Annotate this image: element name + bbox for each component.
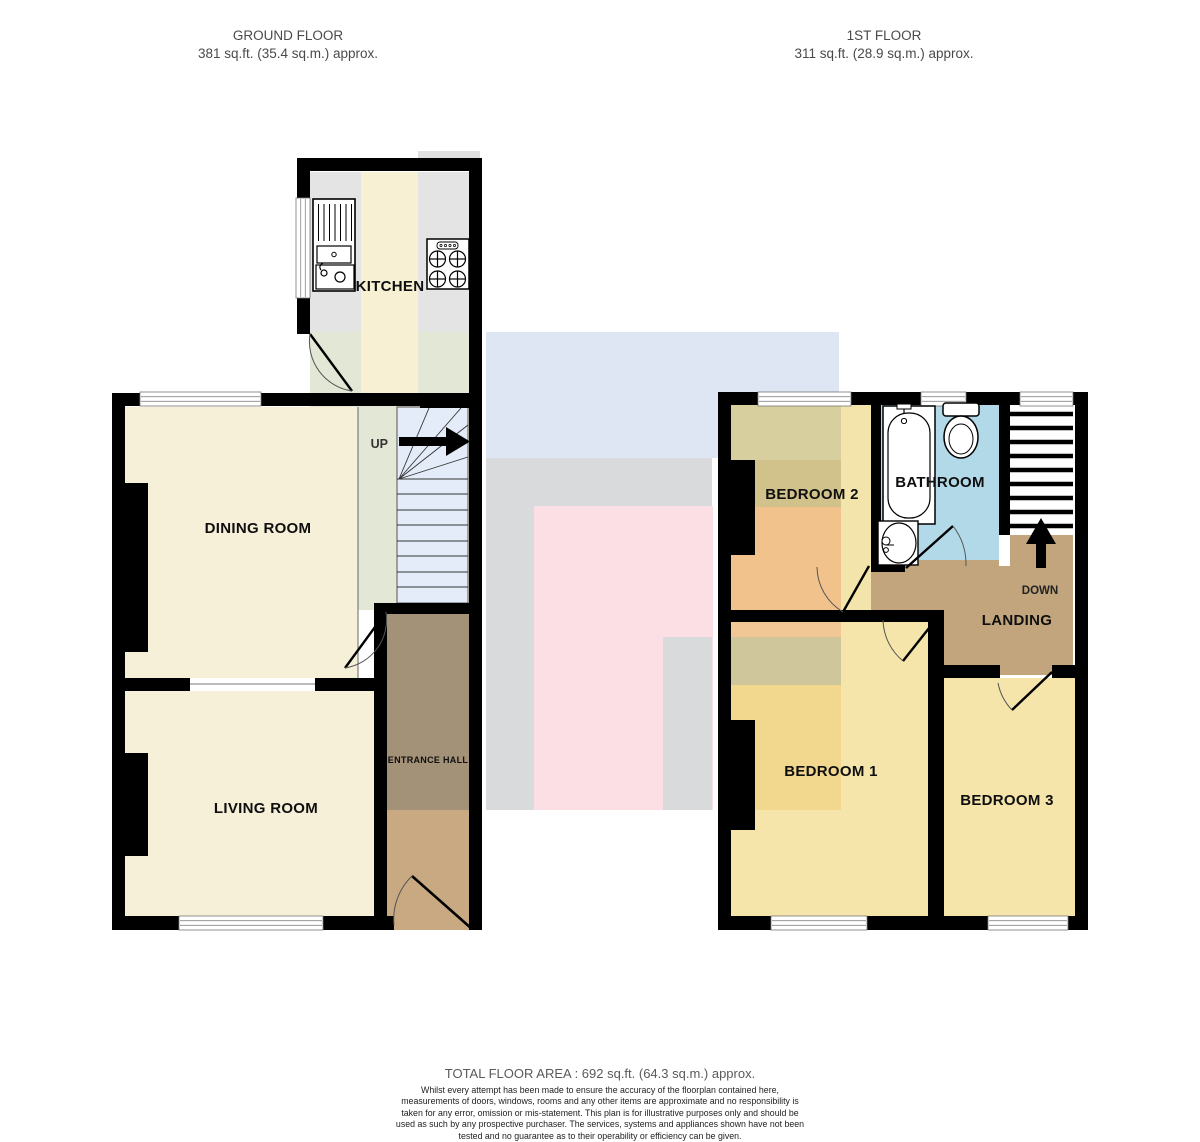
- dining-room: [125, 407, 358, 678]
- bedroom1-window: [771, 916, 867, 930]
- hob: [427, 239, 469, 289]
- total-floor-area: TOTAL FLOOR AREA : 692 sq.ft. (64.3 sq.m…: [0, 1066, 1200, 1081]
- entrance-hall-upper: [387, 610, 469, 810]
- overlay-gray-rect2: [663, 637, 712, 810]
- kitchen-label: KITCHEN: [356, 278, 425, 295]
- up-label: UP: [371, 437, 388, 451]
- landing-label: LANDING: [982, 612, 1052, 629]
- dining-room-label: DINING ROOM: [205, 520, 312, 537]
- first-floor-plan: BEDROOM 2 BATHROOM LANDING BEDROOM 1 BED…: [718, 392, 1088, 930]
- bedroom2-label: BEDROOM 2: [765, 486, 859, 503]
- bathroom-label: BATHROOM: [895, 474, 985, 491]
- bedroom1-label: BEDROOM 1: [784, 763, 878, 780]
- bedroom2-window: [758, 392, 851, 406]
- bathtub: [883, 404, 935, 524]
- toilet: [943, 403, 979, 458]
- entrance-hall-label: ENTRANCE HALL: [388, 755, 469, 765]
- kitchen-window: [296, 198, 310, 298]
- footer: TOTAL FLOOR AREA : 692 sq.ft. (64.3 sq.m…: [0, 1066, 1200, 1142]
- bedroom-2-olive-patch: [731, 405, 841, 460]
- bedroom3-label: BEDROOM 3: [960, 792, 1054, 809]
- sink-unit: [313, 199, 355, 291]
- hall-cream-stripe: [361, 332, 418, 393]
- bedroom3-window: [988, 916, 1068, 930]
- living-room-label: LIVING ROOM: [214, 800, 318, 817]
- floorplan-page: GROUND FLOOR 381 sq.ft. (35.4 sq.m.) app…: [0, 0, 1200, 1142]
- basin: [878, 521, 918, 565]
- ground-stairs: [397, 407, 470, 603]
- down-label: DOWN: [1022, 585, 1058, 597]
- landing-doorway-strip: [905, 560, 999, 567]
- kitchen-top-notch: [418, 151, 480, 158]
- floorplan-drawing: KITCHEN DINING ROOM LIVING ROOM ENTRANCE…: [0, 0, 1200, 1142]
- disclaimer-text: Whilst every attempt has been made to en…: [395, 1085, 805, 1142]
- dining-window: [140, 392, 261, 406]
- kitchen-cream-stripe: [361, 172, 418, 332]
- ground-floor-plan: KITCHEN DINING ROOM LIVING ROOM ENTRANCE…: [112, 151, 482, 930]
- living-window: [179, 916, 323, 930]
- entrance-hall-lower: [387, 810, 469, 930]
- bedroom-1-orange-patch: [731, 620, 841, 637]
- stairs-window: [1020, 392, 1073, 406]
- bedroom-1-olive-patch: [731, 637, 841, 685]
